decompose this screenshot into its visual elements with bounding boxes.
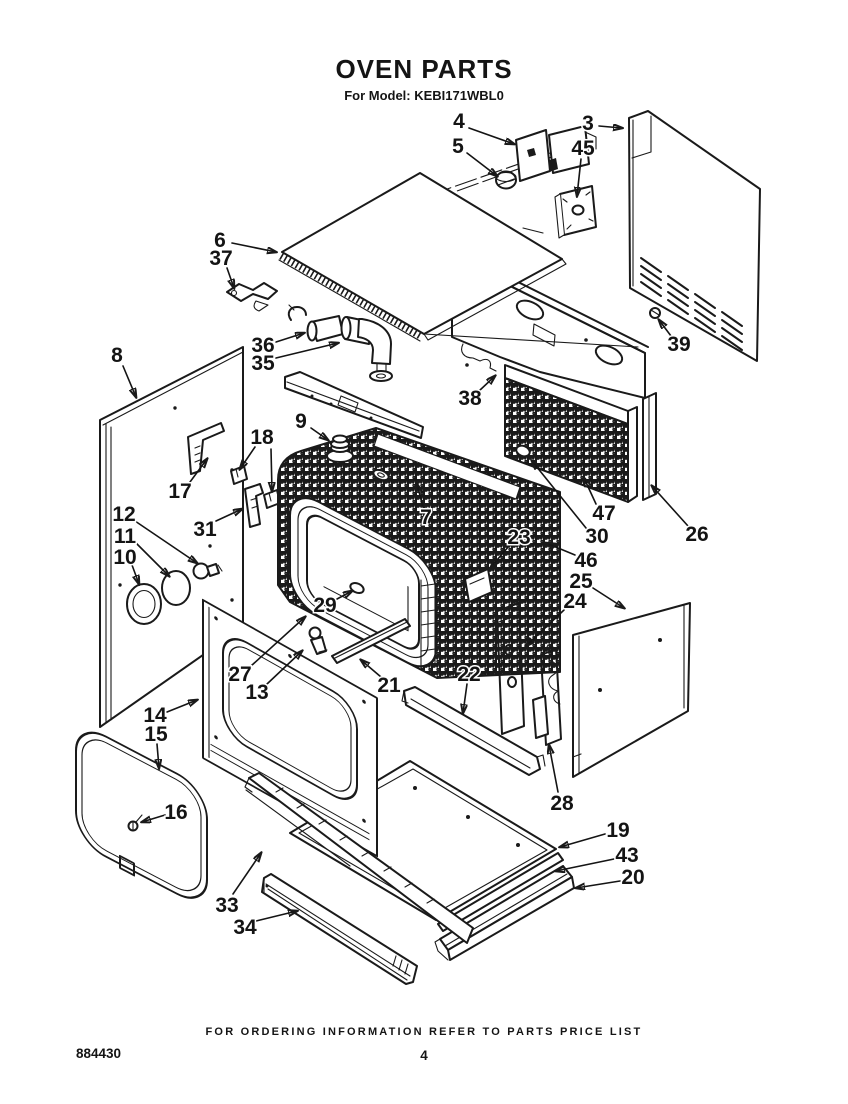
- callout-arrow: [123, 366, 136, 397]
- part-number-label: 43: [615, 844, 638, 867]
- part-bracket-37: [227, 283, 277, 301]
- part-rear-panel: [629, 111, 760, 361]
- part-door-panel: [203, 600, 377, 856]
- callout-arrow: [593, 588, 624, 608]
- part-number-label: 5: [452, 135, 464, 158]
- part-number-label: 7: [420, 506, 432, 529]
- callout-arrow: [167, 700, 197, 712]
- part-gasket-clip-16: [129, 815, 143, 831]
- callout-arrow: [467, 153, 497, 176]
- callout-19: 19: [560, 819, 630, 847]
- callout-38: 38: [458, 376, 495, 410]
- part-number-label: 35: [251, 352, 275, 375]
- callout-arrow: [227, 268, 234, 288]
- part-number-label: 10: [113, 546, 136, 569]
- part-number-label: 22: [457, 663, 480, 686]
- callout-22: 22: [457, 663, 480, 713]
- part-number-label: 33: [215, 894, 238, 917]
- part-number-label: 12: [112, 503, 135, 526]
- part-number-label: 34: [233, 916, 257, 939]
- callout-arrow: [142, 815, 165, 822]
- callout-arrow: [560, 834, 605, 847]
- callout-37: 37: [209, 247, 234, 288]
- part-number-label: 15: [144, 723, 168, 746]
- part-oven-cavity: [278, 428, 560, 678]
- callout-arrow: [576, 881, 620, 888]
- callout-8: 8: [111, 344, 136, 397]
- part-number-label: 26: [685, 523, 708, 546]
- part-number-label: 24: [563, 590, 587, 613]
- callout-arrow: [276, 333, 304, 342]
- part-number-label: 46: [574, 549, 597, 572]
- callout-arrow: [469, 128, 514, 144]
- callout-arrow: [599, 126, 622, 128]
- callout-26: 26: [652, 486, 709, 546]
- part-number-label: 45: [571, 137, 595, 160]
- part-number-label: 21: [377, 674, 401, 697]
- callout-5: 5: [452, 135, 497, 176]
- callout-arrow: [271, 449, 272, 491]
- callout-39: 39: [659, 320, 691, 356]
- callout-34: 34: [233, 911, 297, 939]
- part-number-label: 30: [585, 525, 608, 548]
- footer-note: FOR ORDERING INFORMATION REFER TO PARTS …: [0, 1026, 848, 1038]
- callout-arrow: [463, 684, 467, 713]
- callout-3: 3: [582, 112, 622, 135]
- part-number-label: 13: [245, 681, 268, 704]
- part-number-label: 19: [606, 819, 629, 842]
- part-number-label: 8: [111, 344, 123, 367]
- part-number-label: 28: [550, 792, 574, 815]
- part-screw-39: [650, 308, 660, 318]
- part-number-label: 11: [114, 525, 137, 548]
- part-number-label: 29: [313, 594, 336, 617]
- callout-arrow: [556, 859, 614, 871]
- part-lens-11: [162, 571, 190, 605]
- parts-catalog-page: OVEN PARTS For Model: KEBI171WBL0: [0, 0, 848, 1104]
- part-channel-26: [643, 393, 656, 500]
- part-number-label: 38: [458, 387, 482, 410]
- part-number-label: 17: [168, 480, 191, 503]
- part-number-label: 3: [582, 112, 594, 135]
- part-number-label: 18: [250, 426, 274, 449]
- callout-33: 33: [215, 853, 261, 917]
- callout-arrow: [311, 428, 328, 440]
- callout-28: 28: [549, 745, 574, 815]
- part-number-label: 31: [193, 518, 217, 541]
- callout-arrow: [256, 911, 297, 921]
- callout-9: 9: [295, 410, 328, 440]
- part-number-label: 16: [164, 801, 187, 824]
- part-number-label: 37: [209, 247, 232, 270]
- callout-18: 18: [240, 426, 274, 491]
- part-bracket-31: [245, 484, 263, 527]
- callout-arrow: [276, 343, 338, 358]
- part-number-label: 47: [592, 502, 615, 525]
- part-number-label: 39: [667, 333, 690, 356]
- exploded-diagram: 4545339637363538981718311211107234730462…: [0, 0, 848, 1104]
- callout-16: 16: [142, 801, 188, 824]
- part-number-label: 9: [295, 410, 307, 433]
- part-number-label: 23: [507, 526, 530, 549]
- callout-arrow: [549, 745, 558, 792]
- callout-15: 15: [144, 723, 168, 768]
- part-number-label: 20: [621, 866, 644, 889]
- part-screw-5: [496, 172, 516, 189]
- part-latch-13: [310, 628, 328, 655]
- callout-arrow: [232, 243, 276, 252]
- callout-arrow: [233, 853, 261, 894]
- callout-20: 20: [576, 866, 645, 889]
- callout-arrow: [652, 486, 688, 526]
- part-cover-plate-45: [555, 186, 596, 238]
- part-number-label: 4: [453, 110, 465, 133]
- page-number: 4: [0, 1048, 848, 1063]
- part-right-panel-25: [573, 603, 690, 777]
